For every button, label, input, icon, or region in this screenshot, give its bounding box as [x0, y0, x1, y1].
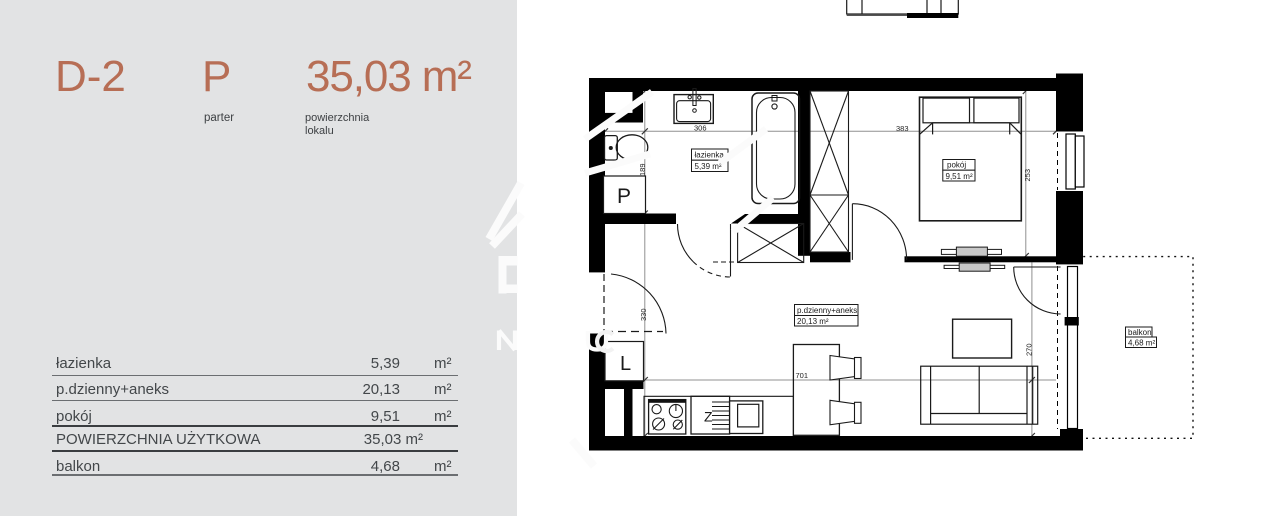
svg-text:4,68 m²: 4,68 m²	[1128, 339, 1155, 348]
svg-text:383: 383	[896, 124, 909, 133]
svg-text:p.dzienny+aneks: p.dzienny+aneks	[797, 306, 857, 315]
svg-text:330: 330	[639, 308, 648, 321]
svg-text:P: P	[617, 185, 631, 208]
svg-text:189: 189	[638, 163, 647, 176]
svg-text:20,13 m²: 20,13 m²	[797, 317, 829, 326]
svg-text:701: 701	[796, 371, 809, 380]
svg-text:9,51 m²: 9,51 m²	[946, 172, 973, 181]
svg-text:balkon: balkon	[1128, 328, 1152, 337]
svg-text:Z: Z	[704, 409, 713, 425]
svg-text:5,39 m²: 5,39 m²	[695, 162, 722, 171]
svg-text:270: 270	[1025, 343, 1034, 356]
svg-text:253: 253	[1023, 169, 1032, 182]
svg-text:306: 306	[694, 123, 707, 132]
svg-text:L: L	[620, 353, 631, 375]
svg-text:pokój: pokój	[947, 161, 966, 170]
svg-text:łazienka: łazienka	[695, 151, 725, 160]
